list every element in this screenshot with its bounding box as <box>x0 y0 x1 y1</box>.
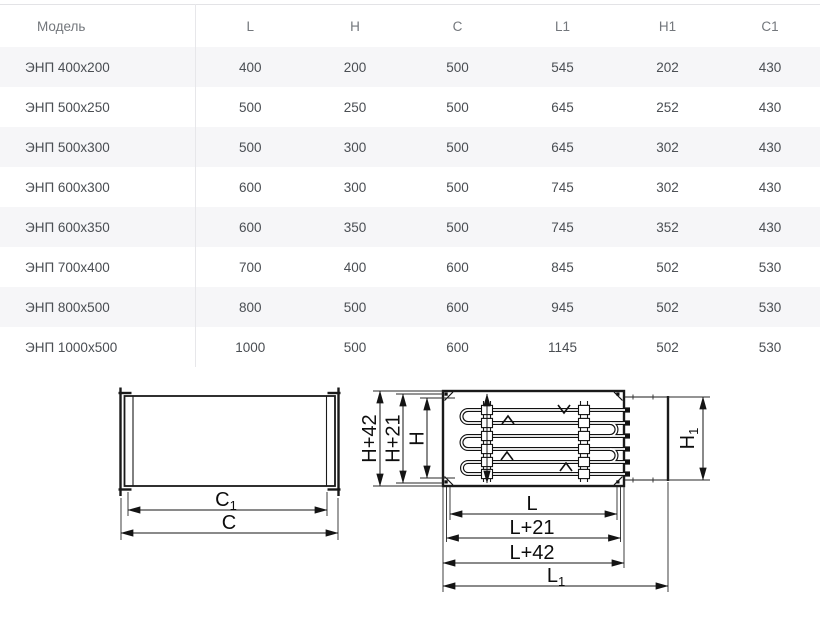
value-cell: 352 <box>615 207 720 247</box>
value-cell: 545 <box>510 47 615 87</box>
value-cell: 250 <box>305 87 405 127</box>
value-cell: 530 <box>720 287 820 327</box>
value-cell: 745 <box>510 167 615 207</box>
dim-h-label: H <box>407 431 429 445</box>
value-cell: 430 <box>720 167 820 207</box>
value-cell: 300 <box>305 167 405 207</box>
model-cell: ЭНП 400х200 <box>0 47 195 87</box>
column-header-l: L <box>195 5 305 48</box>
value-cell: 500 <box>405 87 510 127</box>
value-cell: 430 <box>720 47 820 87</box>
dim-h21-label: H+21 <box>383 414 405 462</box>
value-cell: 500 <box>305 327 405 367</box>
duct-extension <box>624 395 668 483</box>
value-cell: 945 <box>510 287 615 327</box>
value-cell: 530 <box>720 247 820 287</box>
table-row: ЭНП 700х400700400600845502530 <box>0 247 820 287</box>
value-cell: 800 <box>195 287 305 327</box>
spec-table: Модель L H C L1 H1 C1 ЭНП 400х2004002005… <box>0 4 820 367</box>
diagrams-canvas: C1 C <box>0 370 820 622</box>
model-cell: ЭНП 600х350 <box>0 207 195 247</box>
value-cell: 745 <box>510 207 615 247</box>
coil-bracket-right <box>579 401 590 482</box>
spec-table-body: ЭНП 400х200400200500545202430ЭНП 500х250… <box>0 47 820 367</box>
value-cell: 400 <box>195 47 305 87</box>
value-cell: 500 <box>305 287 405 327</box>
heater-top-view: H+42 H+21 H H1 L L+21 L+42 L1 <box>359 391 710 592</box>
value-cell: 430 <box>720 127 820 167</box>
value-cell: 400 <box>305 247 405 287</box>
duct-side-view: C1 C <box>119 388 341 541</box>
model-cell: ЭНП 700х400 <box>0 247 195 287</box>
value-cell: 600 <box>405 327 510 367</box>
value-cell: 645 <box>510 87 615 127</box>
value-cell: 500 <box>195 87 305 127</box>
value-cell: 1145 <box>510 327 615 367</box>
model-cell: ЭНП 800х500 <box>0 287 195 327</box>
dim-l1-label: L1 <box>547 565 565 589</box>
column-header-l1: L1 <box>510 5 615 48</box>
value-cell: 645 <box>510 127 615 167</box>
dim-c-label: C <box>222 512 236 534</box>
table-row: ЭНП 500х250500250500645252430 <box>0 87 820 127</box>
value-cell: 600 <box>405 287 510 327</box>
value-cell: 700 <box>195 247 305 287</box>
terminal-pins <box>610 423 628 462</box>
column-header-model: Модель <box>0 5 195 48</box>
value-cell: 302 <box>615 127 720 167</box>
table-row: ЭНП 600х350600350500745352430 <box>0 207 820 247</box>
page: { "table": { "header": { "model": "Модел… <box>0 0 820 622</box>
model-cell: ЭНП 500х300 <box>0 127 195 167</box>
value-cell: 600 <box>405 247 510 287</box>
model-cell: ЭНП 600х300 <box>0 167 195 207</box>
value-cell: 502 <box>615 247 720 287</box>
value-cell: 600 <box>195 167 305 207</box>
corner-brackets <box>445 392 623 485</box>
table-row: ЭНП 800х500800500600945502530 <box>0 287 820 327</box>
duct-body <box>125 396 336 486</box>
value-cell: 200 <box>305 47 405 87</box>
value-cell: 502 <box>615 287 720 327</box>
value-cell: 252 <box>615 87 720 127</box>
value-cell: 500 <box>195 127 305 167</box>
value-cell: 430 <box>720 87 820 127</box>
value-cell: 530 <box>720 327 820 367</box>
dim-h1-label: H1 <box>677 428 701 450</box>
column-header-h1: H1 <box>615 5 720 48</box>
value-cell: 845 <box>510 247 615 287</box>
value-cell: 202 <box>615 47 720 87</box>
value-cell: 500 <box>405 207 510 247</box>
dim-c1-label: C1 <box>215 489 237 513</box>
table-header-row: Модель L H C L1 H1 C1 <box>0 5 820 48</box>
column-header-h: H <box>305 5 405 48</box>
value-cell: 430 <box>720 207 820 247</box>
model-cell: ЭНП 1000х500 <box>0 327 195 367</box>
value-cell: 500 <box>405 127 510 167</box>
column-header-c1: C1 <box>720 5 820 48</box>
duct-flange-right <box>328 388 341 497</box>
table-row: ЭНП 400х200400200500545202430 <box>0 47 820 87</box>
dim-l-label: L <box>526 493 537 515</box>
heater-casing <box>443 391 624 486</box>
value-cell: 300 <box>305 127 405 167</box>
dim-h42-label: H+42 <box>359 414 381 462</box>
table-row: ЭНП 1000х50010005006001145502530 <box>0 327 820 367</box>
table-row: ЭНП 600х300600300500745302430 <box>0 167 820 207</box>
value-cell: 500 <box>405 167 510 207</box>
dim-l21-label: L+21 <box>509 517 554 539</box>
value-cell: 1000 <box>195 327 305 367</box>
dim-l42-label: L+42 <box>509 542 554 564</box>
value-cell: 600 <box>195 207 305 247</box>
value-cell: 350 <box>305 207 405 247</box>
value-cell: 302 <box>615 167 720 207</box>
value-cell: 500 <box>405 47 510 87</box>
table-row: ЭНП 500х300500300500645302430 <box>0 127 820 167</box>
value-cell: 502 <box>615 327 720 367</box>
model-cell: ЭНП 500х250 <box>0 87 195 127</box>
column-header-c: C <box>405 5 510 48</box>
